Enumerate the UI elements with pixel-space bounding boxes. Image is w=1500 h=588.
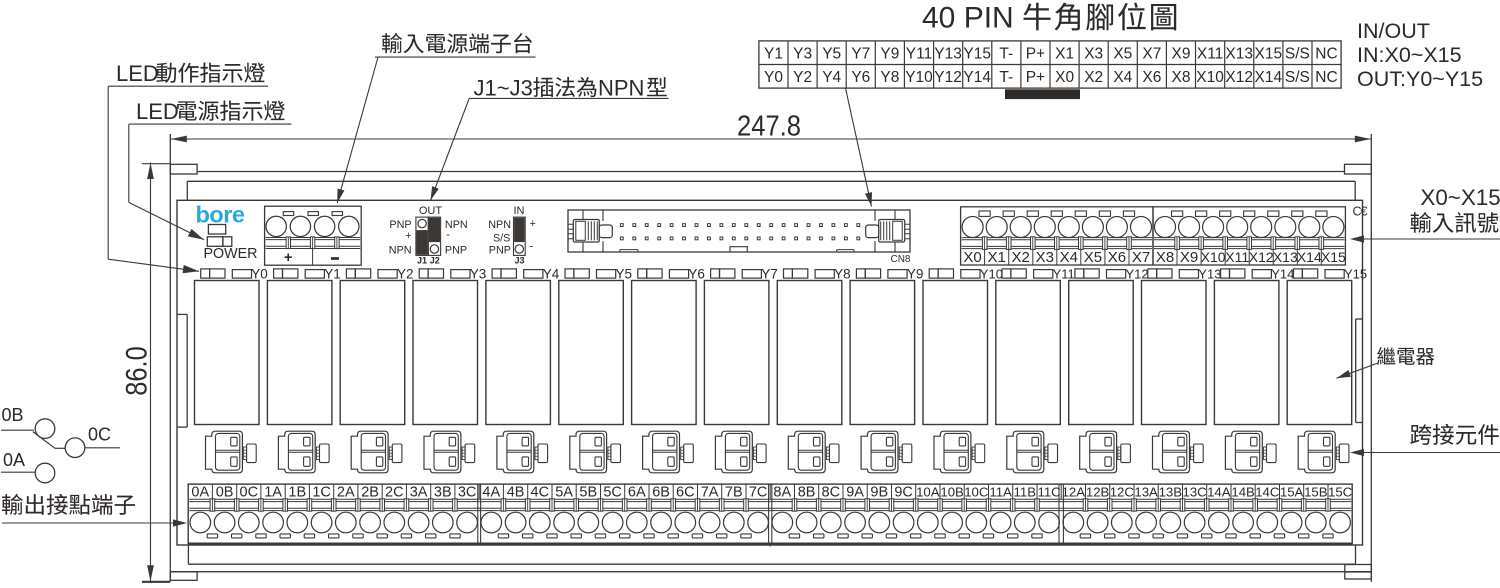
svg-text:Y6: Y6 (851, 69, 870, 86)
svg-text:X0~X15: X0~X15 (1420, 185, 1500, 210)
svg-text:Y4: Y4 (543, 266, 560, 281)
svg-text:14A: 14A (1207, 485, 1231, 500)
svg-text:Y3: Y3 (470, 266, 487, 281)
svg-text:T-: T- (999, 45, 1013, 62)
svg-text:0C: 0C (240, 485, 259, 501)
svg-text:bore: bore (196, 202, 245, 228)
svg-text:Y14: Y14 (1271, 266, 1294, 281)
svg-text:P+: P+ (1026, 45, 1045, 62)
svg-text:X14: X14 (1255, 69, 1283, 86)
svg-text:Y7: Y7 (761, 266, 778, 281)
svg-text:5B: 5B (579, 485, 597, 501)
svg-text:Y10: Y10 (905, 69, 933, 86)
svg-text:7A: 7A (701, 485, 719, 501)
svg-text:X14: X14 (1297, 249, 1322, 265)
svg-text:OUT:Y0~Y15: OUT:Y0~Y15 (1357, 67, 1483, 91)
svg-text:12C: 12C (1110, 485, 1135, 500)
svg-text:CN8: CN8 (890, 254, 910, 265)
svg-text:9B: 9B (870, 485, 888, 501)
svg-text:J1~J3: J1~J3 (474, 75, 533, 100)
svg-text:POWER: POWER (204, 246, 258, 262)
svg-text:J2: J2 (430, 255, 440, 265)
svg-text:Y2: Y2 (397, 266, 414, 281)
svg-text:LED: LED (116, 61, 159, 86)
svg-text:S/S: S/S (493, 233, 510, 245)
svg-text:X12: X12 (1249, 249, 1274, 265)
svg-text:Y11: Y11 (906, 45, 932, 62)
svg-text:Y7: Y7 (851, 45, 870, 62)
svg-text:X11: X11 (1197, 45, 1223, 62)
svg-text:14C: 14C (1255, 485, 1280, 500)
svg-text:-: - (530, 241, 534, 253)
svg-text:X5: X5 (1084, 249, 1102, 266)
svg-text:5C: 5C (603, 485, 622, 501)
svg-text:7C: 7C (749, 485, 768, 501)
svg-text:X4: X4 (1113, 69, 1132, 86)
svg-text:15B: 15B (1304, 485, 1328, 500)
svg-text:1A: 1A (264, 485, 282, 501)
svg-text:X2: X2 (1012, 249, 1030, 266)
svg-text:S/S: S/S (1285, 69, 1310, 86)
svg-text:247.8: 247.8 (737, 111, 801, 143)
svg-text:Y8: Y8 (834, 266, 851, 281)
svg-text:0B: 0B (216, 485, 234, 501)
svg-text:P+: P+ (1026, 69, 1045, 86)
svg-text:6A: 6A (628, 485, 646, 501)
svg-text:X6: X6 (1108, 249, 1126, 266)
svg-text:11C: 11C (1037, 485, 1061, 500)
svg-text:6C: 6C (676, 485, 695, 501)
svg-text:9C: 9C (894, 485, 913, 501)
svg-text:2C: 2C (385, 485, 404, 501)
svg-text:X12: X12 (1225, 69, 1253, 86)
svg-text:13A: 13A (1134, 485, 1158, 500)
svg-text:Y9: Y9 (907, 266, 924, 281)
svg-text:4C: 4C (531, 485, 550, 501)
svg-text:6B: 6B (652, 485, 670, 501)
svg-text:PNP: PNP (445, 244, 467, 256)
svg-text:X13: X13 (1273, 249, 1298, 265)
svg-text:Y1: Y1 (764, 45, 783, 62)
svg-text:Y12: Y12 (934, 69, 962, 86)
svg-text:NPN: NPN (389, 244, 412, 256)
svg-text:Y3: Y3 (793, 45, 812, 62)
svg-text:X4: X4 (1060, 249, 1078, 266)
svg-text:IN: IN (514, 205, 525, 217)
svg-text:X1: X1 (988, 249, 1006, 266)
svg-text:X13: X13 (1225, 45, 1253, 62)
svg-text:J3: J3 (514, 255, 524, 265)
svg-text:+: + (405, 230, 411, 242)
svg-text:15A: 15A (1280, 485, 1304, 500)
svg-text:0A: 0A (191, 485, 209, 501)
svg-text:8B: 8B (798, 485, 816, 501)
svg-text:4A: 4A (482, 485, 500, 501)
svg-text:LED: LED (136, 99, 179, 124)
svg-text:15C: 15C (1328, 485, 1353, 500)
svg-text:4B: 4B (507, 485, 525, 501)
svg-text:T-: T- (999, 69, 1013, 86)
svg-text:1C: 1C (312, 485, 331, 501)
svg-text:8A: 8A (773, 485, 791, 501)
svg-text:11A: 11A (989, 485, 1012, 500)
svg-text:0A: 0A (3, 450, 25, 470)
svg-text:2A: 2A (337, 485, 355, 501)
svg-text:NPN: NPN (488, 219, 511, 231)
svg-text:Y12: Y12 (1126, 266, 1149, 281)
svg-text:X3: X3 (1084, 45, 1103, 62)
svg-text:Y14: Y14 (963, 69, 991, 86)
svg-text:Y15: Y15 (963, 45, 991, 62)
svg-text:Y2: Y2 (793, 69, 812, 86)
svg-text:X8: X8 (1156, 249, 1174, 266)
svg-text:Y1: Y1 (324, 266, 341, 281)
svg-text:Y6: Y6 (688, 266, 705, 281)
svg-text:12B: 12B (1086, 485, 1110, 500)
svg-text:X0: X0 (1055, 69, 1074, 86)
svg-text:Y13: Y13 (934, 45, 962, 62)
svg-text:13C: 13C (1182, 485, 1207, 500)
svg-text:14B: 14B (1231, 485, 1255, 500)
svg-text:X5: X5 (1113, 45, 1132, 62)
svg-text:Y5: Y5 (822, 45, 841, 62)
svg-text:Y8: Y8 (880, 69, 899, 86)
svg-text:Y11: Y11 (1053, 266, 1075, 281)
svg-text:X11: X11 (1225, 249, 1249, 265)
svg-text:X0: X0 (963, 249, 981, 266)
svg-text:S/S: S/S (1285, 45, 1310, 62)
svg-text:10B: 10B (940, 485, 964, 500)
svg-text:0B: 0B (2, 405, 24, 425)
svg-text:Y10: Y10 (980, 266, 1003, 281)
svg-text:Y0: Y0 (251, 266, 268, 281)
svg-text:11B: 11B (1014, 485, 1037, 500)
svg-text:X7: X7 (1132, 249, 1150, 266)
svg-text:NC: NC (1315, 45, 1337, 62)
svg-text:X15: X15 (1255, 45, 1283, 62)
svg-text:X10: X10 (1196, 69, 1224, 86)
svg-text:Y0: Y0 (764, 69, 783, 86)
svg-text:1B: 1B (288, 485, 306, 501)
svg-text:Y9: Y9 (880, 45, 899, 62)
svg-text:-: - (446, 229, 450, 241)
svg-text:3C: 3C (458, 485, 477, 501)
svg-text:OUT: OUT (419, 205, 443, 217)
svg-text:X9: X9 (1180, 249, 1198, 266)
svg-text:IN/OUT: IN/OUT (1357, 19, 1430, 43)
svg-text:Y4: Y4 (822, 69, 841, 86)
svg-text:10C: 10C (964, 485, 989, 500)
svg-text:J1: J1 (417, 255, 427, 265)
svg-text:NPN: NPN (598, 75, 644, 100)
svg-text:9A: 9A (846, 485, 864, 501)
svg-text:40 PIN: 40 PIN (922, 2, 1014, 35)
svg-text:X15: X15 (1321, 249, 1346, 265)
svg-text:X6: X6 (1142, 69, 1161, 86)
svg-text:10A: 10A (916, 485, 940, 500)
svg-text:X9: X9 (1172, 45, 1191, 62)
svg-text:0C: 0C (88, 425, 111, 445)
svg-text:€: € (1361, 205, 1368, 219)
svg-text:13B: 13B (1159, 485, 1183, 500)
svg-text:2B: 2B (361, 485, 379, 501)
svg-text:X1: X1 (1055, 45, 1074, 62)
svg-text:3A: 3A (410, 485, 428, 501)
svg-text:86.0: 86.0 (120, 346, 153, 396)
svg-text:3B: 3B (434, 485, 452, 501)
svg-text:X8: X8 (1172, 69, 1191, 86)
svg-text:PNP: PNP (489, 244, 511, 256)
svg-text:Y13: Y13 (1198, 266, 1221, 281)
svg-text:7B: 7B (725, 485, 743, 501)
svg-text:IN:X0~X15: IN:X0~X15 (1357, 43, 1462, 67)
svg-text:12A: 12A (1062, 485, 1086, 500)
svg-text:5A: 5A (555, 485, 573, 501)
svg-text:NC: NC (1315, 69, 1337, 86)
svg-text:Y15: Y15 (1344, 266, 1367, 281)
svg-text:X10: X10 (1201, 249, 1226, 265)
svg-text:8C: 8C (822, 485, 841, 501)
svg-text:+: + (284, 250, 292, 266)
svg-text:X2: X2 (1084, 69, 1103, 86)
svg-text:X7: X7 (1142, 45, 1161, 62)
svg-text:+: + (530, 218, 536, 230)
svg-text:X3: X3 (1036, 249, 1054, 266)
svg-text:Y5: Y5 (616, 266, 633, 281)
